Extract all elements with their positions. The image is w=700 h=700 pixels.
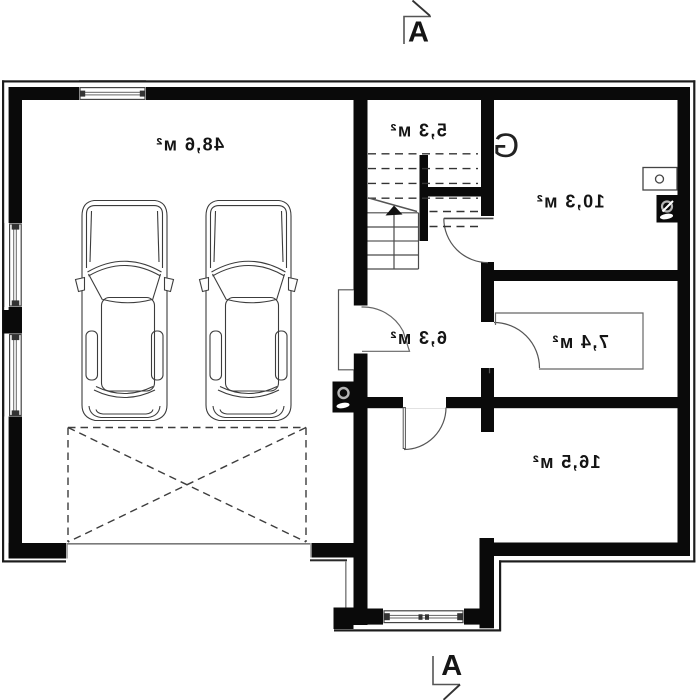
svg-text:5,3 м²: 5,3 м²: [389, 121, 447, 141]
svg-text:6,3 м²: 6,3 м²: [389, 328, 447, 348]
svg-text:7,4 м²: 7,4 м²: [551, 332, 609, 352]
svg-text:16,5 м²: 16,5 м²: [531, 452, 600, 472]
svg-text:A: A: [441, 650, 462, 682]
svg-text:10,3 м²: 10,3 м²: [535, 192, 604, 212]
svg-text:48,6 м²: 48,6 м²: [155, 135, 224, 155]
svg-text:G: G: [493, 127, 519, 165]
svg-text:A: A: [408, 17, 429, 49]
